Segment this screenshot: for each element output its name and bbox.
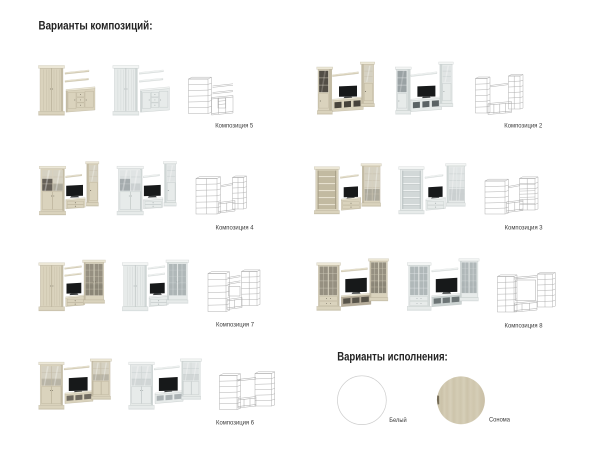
svg-text:Варианты композиций:: Варианты композиций:	[39, 20, 153, 32]
svg-text:Белый: Белый	[389, 417, 406, 424]
svg-text:Композиция 2: Композиция 2	[504, 122, 542, 129]
svg-text:Композиция 3: Композиция 3	[505, 225, 543, 232]
svg-text:Композиция 6: Композиция 6	[216, 420, 254, 427]
svg-text:Сонома: Сонома	[489, 417, 511, 423]
svg-text:Варианты исполнения:: Варианты исполнения:	[337, 352, 448, 364]
svg-text:Композиция 4: Композиция 4	[216, 224, 254, 231]
svg-text:Композиция 5: Композиция 5	[215, 122, 253, 129]
svg-text:Композиция 8: Композиция 8	[505, 322, 543, 329]
svg-text:Композиция 7: Композиция 7	[216, 321, 254, 328]
